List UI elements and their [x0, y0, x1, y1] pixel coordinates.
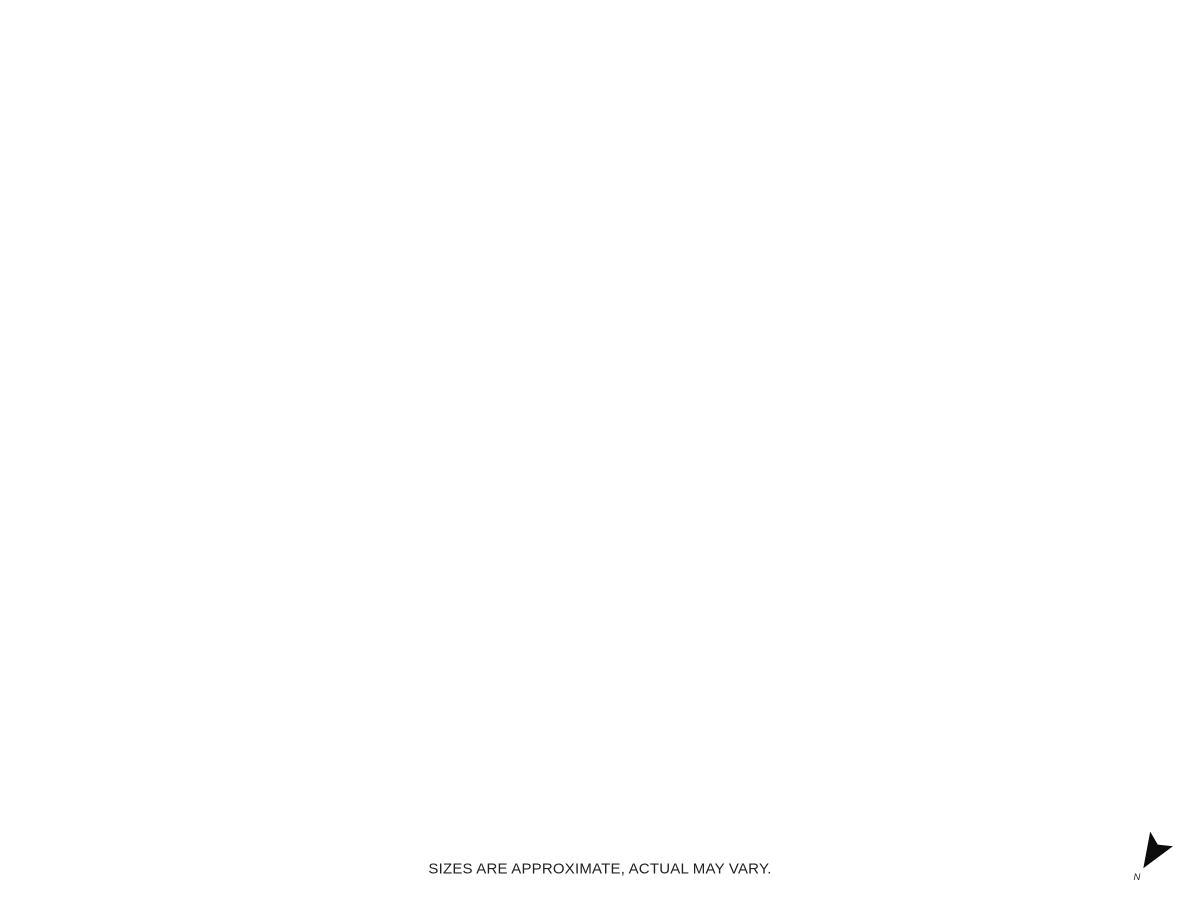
svg-text:N: N: [1134, 872, 1141, 883]
svg-text:SIZES ARE APPROXIMATE, ACTUAL: SIZES ARE APPROXIMATE, ACTUAL MAY VARY.: [428, 861, 771, 878]
